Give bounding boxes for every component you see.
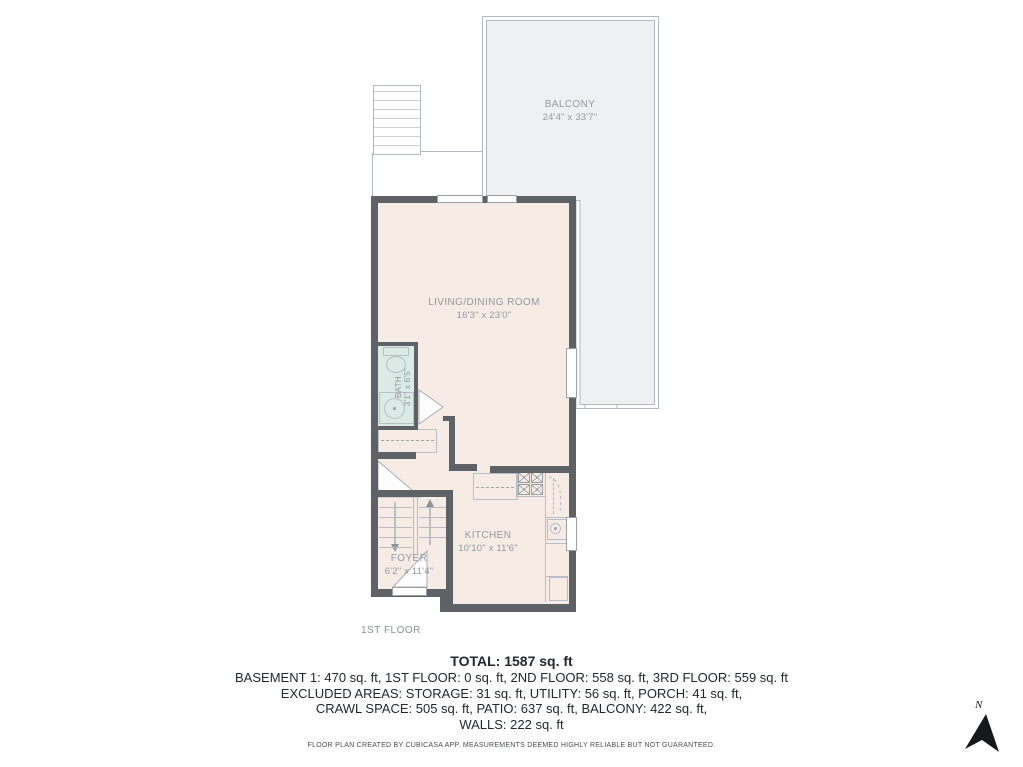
wall — [375, 342, 418, 346]
wall — [449, 464, 477, 471]
counter-divider — [545, 543, 568, 544]
wall — [371, 490, 453, 497]
wall — [375, 426, 418, 430]
wall — [449, 416, 455, 471]
closet-rod-line — [381, 440, 434, 441]
window — [487, 195, 517, 203]
summary-line: BASEMENT 1: 470 sq. ft, 1ST FLOOR: 0 sq.… — [0, 670, 1023, 686]
summary-line: WALLS: 222 sq. ft — [0, 717, 1023, 733]
room-dims: 6'2" x 11'4" — [385, 566, 434, 579]
room-label-balcony: BALCONY 24'4" x 33'7" — [543, 99, 598, 124]
window — [437, 195, 483, 203]
total-area: TOTAL: 1587 sq. ft — [0, 653, 1023, 670]
stove-burner-icon — [518, 484, 530, 495]
room-label-kitchen: KITCHEN 10'10" x 11'6" — [458, 530, 517, 555]
stairs-down-arrowhead — [391, 544, 399, 552]
closet — [378, 429, 437, 453]
room-dims: 3'1" x 6'5" — [403, 368, 413, 406]
room-label-bath: BATH 3'1" x 6'5" — [372, 357, 434, 417]
upper-stairs — [373, 85, 421, 155]
room-name: LIVING/DINING ROOM — [428, 297, 540, 310]
toilet-icon — [383, 347, 409, 356]
summary-line: EXCLUDED AREAS: STORAGE: 31 sq. ft, UTIL… — [0, 686, 1023, 702]
stove-burner-icon — [518, 472, 530, 483]
room-name: BALCONY — [543, 99, 598, 112]
window — [566, 348, 577, 398]
north-label: N — [975, 699, 982, 711]
counter-dash-line — [476, 487, 514, 488]
room-dims: 24'4" x 33'7" — [543, 112, 598, 125]
entry-door-sill — [392, 587, 427, 596]
exterior-wall-line — [372, 153, 373, 196]
room-name: FOYER — [385, 553, 434, 566]
wall — [371, 452, 416, 459]
upper-cabinet-dashed-line — [553, 478, 554, 514]
stove-burner-icon — [531, 472, 543, 483]
room-dims: 16'3" x 23'0" — [428, 310, 540, 323]
stove-burner-icon — [531, 484, 543, 495]
faucet-dot — [554, 527, 557, 530]
counter-edge-line — [545, 473, 546, 602]
floor-label: 1ST FLOOR — [361, 625, 421, 636]
room-dims: 10'10" x 11'6" — [458, 543, 517, 556]
window — [566, 517, 577, 551]
room-label-foyer: FOYER 6'2" x 11'4" — [385, 553, 434, 578]
plan-geometry — [0, 0, 1023, 767]
room-name: KITCHEN — [458, 530, 517, 543]
wall — [440, 604, 576, 612]
wall — [490, 466, 576, 473]
stairs-up-arrowhead — [426, 499, 434, 507]
counter-divider — [545, 517, 568, 518]
disclaimer-text: FLOOR PLAN CREATED BY CUBICASA APP. MEAS… — [0, 742, 1023, 749]
room-name: BATH — [394, 376, 404, 398]
summary-line: CRAWL SPACE: 505 sq. ft, PATIO: 637 sq. … — [0, 701, 1023, 717]
floor-plan-page: BALCONY 24'4" x 33'7" LIVING/DINING ROOM… — [0, 0, 1023, 767]
room-label-living: LIVING/DINING ROOM 16'3" x 23'0" — [428, 297, 540, 322]
area-summary: TOTAL: 1587 sq. ft BASEMENT 1: 470 sq. f… — [0, 653, 1023, 732]
wall — [440, 589, 453, 612]
fridge-icon — [549, 577, 568, 601]
counter-dashed-arc — [549, 477, 561, 513]
